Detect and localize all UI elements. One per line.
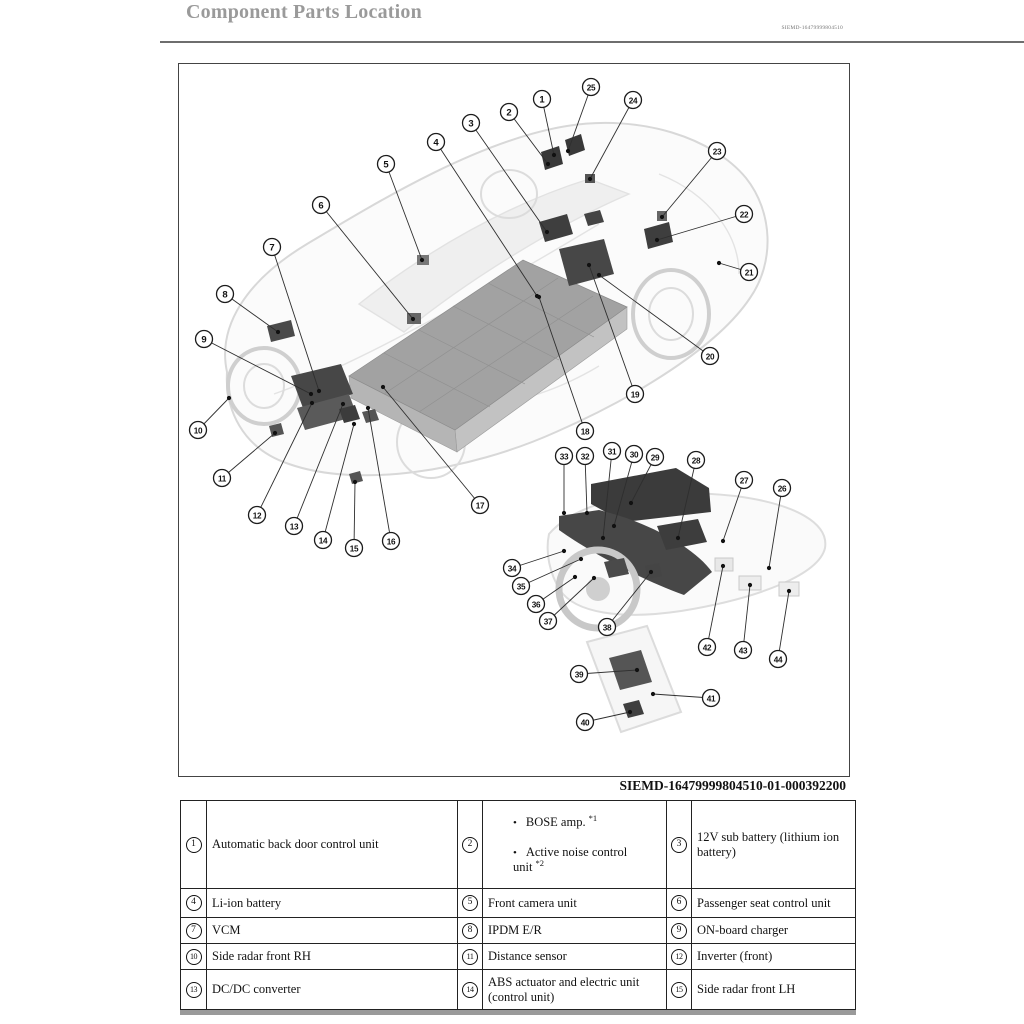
target-dot — [352, 422, 356, 426]
target-dot — [717, 261, 721, 265]
table-cell-number: 2 — [457, 801, 482, 888]
table-cell-number: 4 — [181, 889, 206, 917]
table-cell-label: VCM — [206, 918, 457, 943]
circled-number: 9 — [671, 923, 687, 939]
callout-number: 22 — [740, 210, 749, 219]
callout-33: 33 — [556, 448, 573, 516]
bullet-text: Active noise control unit — [513, 845, 627, 875]
console-unit — [587, 626, 681, 732]
circled-number: 6 — [671, 895, 687, 911]
table-cell-label: Inverter (front) — [691, 944, 851, 969]
callout-number: 35 — [517, 582, 526, 591]
target-dot — [787, 589, 791, 593]
callout-number: 43 — [739, 646, 748, 655]
target-dot — [381, 385, 385, 389]
table-cell-number: 6 — [666, 889, 691, 917]
callout-number: 41 — [707, 694, 716, 703]
target-dot — [366, 406, 370, 410]
circled-number: 5 — [462, 895, 478, 911]
table-cell-number: 5 — [457, 889, 482, 917]
callout-number: 16 — [387, 537, 396, 546]
callout-number: 15 — [350, 544, 359, 553]
target-dot — [628, 710, 632, 714]
callout-number: 34 — [508, 564, 517, 573]
bullet-item: •BOSE amp.*1 — [513, 814, 597, 830]
table-cell-number: 1 — [181, 801, 206, 888]
callout-15: 15 — [346, 480, 363, 557]
target-dot — [317, 389, 321, 393]
table-cell-number: 13 — [181, 970, 206, 1009]
document-page: Component Parts Location SIEMD-164799998… — [0, 0, 1024, 1024]
callout-number: 23 — [713, 147, 722, 156]
table-cell-label: ABS actuator and electric unit (control … — [482, 970, 666, 1009]
callout-number: 4 — [433, 137, 439, 148]
target-dot — [597, 273, 601, 277]
callout-number: 40 — [581, 718, 590, 727]
bullet-dot: • — [513, 817, 517, 830]
callout-number: 20 — [706, 352, 715, 361]
target-dot — [309, 392, 313, 396]
table-cell-label: Automatic back door control unit — [206, 801, 457, 888]
target-dot — [660, 215, 664, 219]
page-title: Component Parts Location — [186, 1, 422, 24]
callout-number: 36 — [532, 600, 541, 609]
callout-number: 39 — [575, 670, 584, 679]
bullet-text: BOSE amp. — [526, 815, 586, 829]
table-continuation-edge — [180, 1010, 856, 1015]
target-dot — [649, 570, 653, 574]
target-dot — [612, 524, 616, 528]
callout-number: 9 — [201, 334, 206, 345]
bullet-dot: • — [513, 847, 517, 860]
callout-44: 44 — [770, 589, 792, 668]
circled-number: 12 — [671, 949, 687, 965]
table-cell-label: ON-board charger — [691, 918, 851, 943]
bullet-item: •Active noise control unit*2 — [513, 845, 661, 875]
callout-number: 29 — [651, 453, 660, 462]
header-rule — [160, 41, 1024, 43]
callout-32: 32 — [577, 448, 594, 516]
callout-number: 25 — [587, 83, 596, 92]
target-dot — [411, 317, 415, 321]
callout-number: 17 — [476, 501, 485, 510]
target-dot — [721, 539, 725, 543]
table-cell-number: 10 — [181, 944, 206, 969]
table-cell-number: 8 — [457, 918, 482, 943]
table-cell-label: IPDM E/R — [482, 918, 666, 943]
target-dot — [767, 566, 771, 570]
target-dot — [629, 501, 633, 505]
target-dot — [310, 401, 314, 405]
target-dot — [353, 480, 357, 484]
target-dot — [592, 576, 596, 580]
callout-number: 3 — [468, 118, 473, 129]
component-table: 1Automatic back door control unit2•BOSE … — [180, 800, 856, 1010]
callout-10: 10 — [190, 396, 232, 439]
table-cell-label: 12V sub battery (lithium ion battery) — [691, 801, 851, 888]
table-row: 13DC/DC converter14ABS actuator and elec… — [181, 970, 855, 1009]
callout-number: 32 — [581, 452, 590, 461]
callout-11: 11 — [214, 431, 278, 487]
target-dot — [655, 238, 659, 242]
circled-number: 15 — [671, 982, 687, 998]
callout-number: 14 — [319, 536, 328, 545]
circled-number: 13 — [186, 982, 202, 998]
callout-number: 11 — [218, 474, 227, 483]
leader-line — [778, 591, 789, 659]
leader-line — [222, 433, 275, 478]
callout-number: 28 — [692, 456, 701, 465]
table-cell-label: Passenger seat control unit — [691, 889, 851, 917]
target-dot — [552, 153, 556, 157]
table-row: 4Li-ion battery5Front camera unit6Passen… — [181, 889, 855, 918]
callout-number: 37 — [544, 617, 553, 626]
target-dot — [546, 162, 550, 166]
table-cell-label: Distance sensor — [482, 944, 666, 969]
table-row: 7VCM8IPDM E/R9ON-board charger — [181, 918, 855, 944]
table-cell-number: 15 — [666, 970, 691, 1009]
target-dot — [545, 230, 549, 234]
target-dot — [587, 263, 591, 267]
callout-number: 7 — [269, 242, 274, 253]
leader-line — [354, 482, 355, 548]
target-dot — [748, 583, 752, 587]
circled-number: 3 — [671, 837, 687, 853]
target-dot — [420, 258, 424, 262]
figure-caption: SIEMD-16479999804510-01-000392200 — [178, 778, 846, 794]
target-dot — [635, 668, 639, 672]
footnote-marker: *2 — [535, 858, 544, 868]
target-dot — [562, 511, 566, 515]
doc-code: SIEMD-16479999804510 — [782, 25, 843, 31]
target-dot — [651, 692, 655, 696]
circled-number: 11 — [462, 949, 478, 965]
target-dot — [276, 330, 280, 334]
table-cell-label: Front camera unit — [482, 889, 666, 917]
callout-number: 21 — [745, 268, 754, 277]
circled-number: 8 — [462, 923, 478, 939]
target-dot — [585, 511, 589, 515]
callout-number: 2 — [506, 107, 511, 118]
instrument-panel-diagram — [548, 468, 826, 732]
target-dot — [537, 295, 541, 299]
callout-number: 1 — [539, 94, 545, 105]
callout-number: 12 — [253, 511, 262, 520]
callout-number: 44 — [774, 655, 783, 664]
target-dot — [227, 396, 231, 400]
table-cell-number: 9 — [666, 918, 691, 943]
circled-number: 7 — [186, 923, 202, 939]
callout-number: 33 — [560, 452, 569, 461]
table-cell-label: Side radar front RH — [206, 944, 457, 969]
table-cell-number: 12 — [666, 944, 691, 969]
callout-number: 19 — [631, 390, 640, 399]
target-dot — [273, 431, 277, 435]
figure-frame: 1234567891011121314151617181920212223242… — [178, 63, 850, 777]
target-dot — [566, 149, 570, 153]
footnote-marker: *1 — [589, 813, 598, 823]
circled-number: 14 — [462, 982, 478, 998]
callout-number: 27 — [740, 476, 749, 485]
callout-number: 5 — [383, 159, 389, 170]
callout-number: 38 — [603, 623, 612, 632]
target-dot — [579, 557, 583, 561]
target-dot — [601, 536, 605, 540]
target-dot — [562, 549, 566, 553]
table-cell-label: DC/DC converter — [206, 970, 457, 1009]
table-cell-label: Li-ion battery — [206, 889, 457, 917]
table-row: 10Side radar front RH11Distance sensor12… — [181, 944, 855, 970]
callout-number: 26 — [778, 484, 787, 493]
table-cell-label: Side radar front LH — [691, 970, 851, 1009]
table-row: 1Automatic back door control unit2•BOSE … — [181, 801, 855, 889]
callout-number: 13 — [290, 522, 299, 531]
target-dot — [341, 402, 345, 406]
target-dot — [588, 177, 592, 181]
callout-number: 8 — [222, 289, 227, 300]
target-dot — [573, 575, 577, 579]
table-cell-number: 14 — [457, 970, 482, 1009]
circled-number: 2 — [462, 837, 478, 853]
table-cell-number: 3 — [666, 801, 691, 888]
callout-number: 10 — [194, 426, 203, 435]
table-cell-number: 7 — [181, 918, 206, 943]
table-cell-number: 11 — [457, 944, 482, 969]
target-dot — [721, 564, 725, 568]
circled-number: 10 — [186, 949, 202, 965]
callout-number: 42 — [703, 643, 712, 652]
callout-number: 24 — [629, 96, 638, 105]
component-location-diagram: 1234567891011121314151617181920212223242… — [179, 64, 849, 776]
circled-number: 1 — [186, 837, 202, 853]
callout-number: 30 — [630, 450, 639, 459]
callout-number: 6 — [318, 200, 323, 211]
table-cell-label: •BOSE amp.*1•Active noise control unit*2 — [482, 801, 666, 888]
target-dot — [676, 536, 680, 540]
circled-number: 4 — [186, 895, 202, 911]
callout-number: 31 — [608, 447, 617, 456]
callout-number: 18 — [581, 427, 590, 436]
